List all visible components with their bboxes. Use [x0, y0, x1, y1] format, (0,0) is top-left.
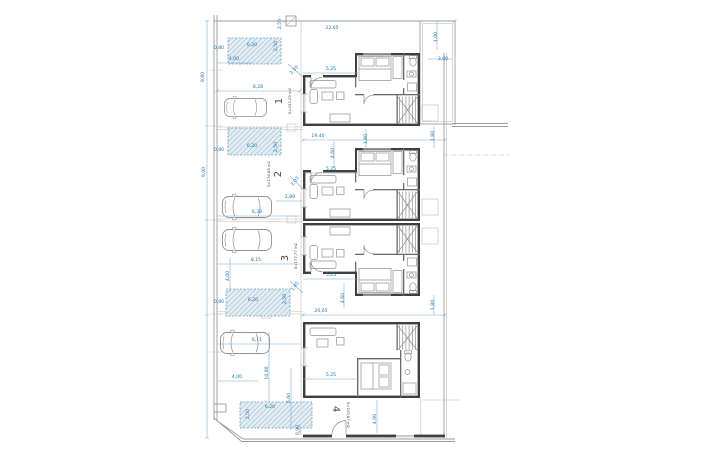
- dimension-label: 10,90: [264, 366, 270, 379]
- dimension-label: 4,60: [330, 148, 336, 158]
- dimension-label: 1,80: [430, 300, 436, 310]
- dimension-label: 6,20: [247, 42, 257, 48]
- dimension-label: 6,20: [247, 143, 257, 149]
- dimension-label: 22,65: [325, 25, 338, 31]
- dimension-label: 8,15: [251, 257, 261, 263]
- dimension-label: 1,80: [430, 131, 436, 141]
- dimension-label: 0,90: [295, 425, 301, 435]
- dimension-label: 2,50: [273, 41, 279, 51]
- unit-number: 2: [273, 171, 284, 177]
- dimension-label: 8,39: [252, 209, 262, 215]
- dimension-label: 9,00: [201, 167, 207, 177]
- dimension-label: 2,50: [277, 19, 283, 29]
- unit-2-plan: [301, 148, 420, 221]
- dimension-label: 4,00: [229, 56, 239, 62]
- site-plan-drawing: 22,652,501,003,000,806,202,504,009,805,2…: [0, 0, 705, 470]
- dimension-label: 4,60: [340, 293, 346, 303]
- unit-1-plan: [301, 53, 420, 126]
- unit-3-plan: [301, 223, 420, 296]
- dimension-label: 0,80: [214, 45, 224, 51]
- dimension-label: 20,65: [314, 308, 327, 314]
- car-icon: [223, 227, 272, 253]
- dimension-label: 9,80: [200, 72, 206, 82]
- dimension-label: 19,40: [311, 133, 324, 139]
- dimension-label: 4,00: [372, 414, 378, 424]
- dimension-label: 6,20: [248, 297, 258, 303]
- dimension-label: 5,25: [326, 166, 336, 172]
- dimension-label: 5,25: [326, 272, 336, 278]
- dimension-label: 1,00: [433, 32, 439, 42]
- dimension-label: 2,50: [273, 142, 279, 152]
- dimension-label: 1,80: [363, 134, 369, 144]
- dimension-label: 8,28: [253, 84, 263, 90]
- dimension-label: 5,25: [326, 66, 336, 72]
- car-icon: [221, 330, 270, 356]
- dimension-label: 2,50: [282, 294, 288, 304]
- unit-area-label: S=233,29 m2: [287, 87, 292, 114]
- dimension-label: 2,50: [245, 409, 251, 419]
- dimension-label: 4,00: [225, 271, 231, 281]
- dimension-label: 0,80: [214, 299, 224, 305]
- dimension-labels: 22,652,501,003,000,806,202,504,009,805,2…: [200, 19, 448, 435]
- unit-number: 1: [274, 98, 285, 104]
- dimension-label: 6,60: [286, 393, 292, 403]
- dimension-label: 6,20: [265, 404, 275, 410]
- dimension-label: 2,89: [285, 194, 295, 200]
- unit-area-label: S=245,87 m2: [346, 402, 351, 429]
- unit-4-plan: [301, 322, 420, 398]
- unit-number: 3: [280, 255, 291, 261]
- unit-area-label: S=176,68 m2: [266, 160, 271, 187]
- parcel-boundary: [210, 15, 510, 442]
- dimension-label: 3,00: [438, 56, 448, 62]
- dimension-label: 5,25: [326, 372, 336, 378]
- unit-number: 4: [330, 406, 341, 412]
- dimension-label: 8,11: [252, 337, 262, 343]
- dimension-label: 4,00: [232, 374, 242, 380]
- car-icon: [224, 96, 266, 118]
- dimension-label: 0,80: [214, 147, 224, 153]
- unit-area-label: S=177,77 m2: [293, 242, 298, 269]
